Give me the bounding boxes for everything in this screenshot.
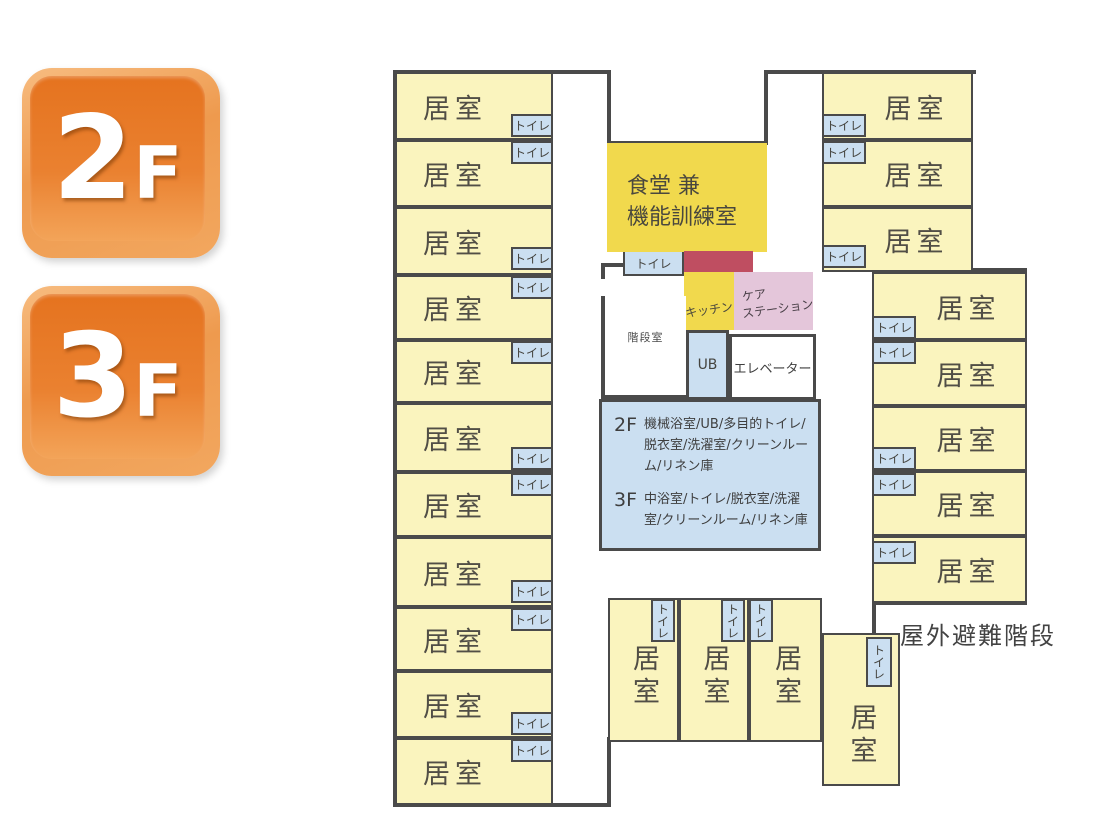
resident-room-label: 居室	[885, 154, 949, 193]
facility-info-box: 2F 機械浴室/UB/多目的トイレ/脱衣室/洗濯室/クリーンルーム/リネン庫 3…	[599, 399, 821, 551]
toilet-label: トイレ	[876, 544, 912, 561]
outdoor-evacuation-stairs-label: 屋外避難階段	[900, 616, 1056, 651]
ub-label: UB	[698, 357, 718, 373]
toilet: トイレ	[511, 247, 553, 270]
toilet: トイレ	[511, 608, 553, 631]
toilet-label: トイレ	[514, 144, 550, 161]
toilet-label: トイレ	[514, 742, 550, 759]
toilet-label: トイレ	[514, 476, 550, 493]
toilet-label: トイレ	[876, 319, 912, 336]
resident-room-label: 居室	[937, 287, 1001, 326]
toilet-label: トイレ	[725, 603, 742, 639]
stairwell-label: 階段室	[628, 329, 664, 345]
resident-room-label: 居室	[423, 288, 487, 327]
toilet-label: トイレ	[826, 248, 862, 265]
badge-face: 3F	[30, 294, 205, 459]
floor-suffix: F	[133, 349, 182, 433]
care-station: ケア ステーション	[734, 272, 813, 330]
toilet: トイレ	[721, 599, 745, 642]
toilet: トイレ	[511, 739, 553, 762]
kitchen: キッチン	[684, 272, 734, 330]
toilet-label: トイレ	[826, 144, 862, 161]
wall-segment	[872, 601, 876, 637]
toilet: トイレ	[511, 473, 553, 496]
info-2f-text: 機械浴室/UB/多目的トイレ/脱衣室/洗濯室/クリーンルーム/リネン庫	[644, 415, 810, 477]
toilet-label: トイレ	[514, 279, 550, 296]
ub-unit-bath: UB	[686, 330, 729, 400]
wall-segment	[607, 737, 611, 807]
toilet: トイレ	[511, 580, 553, 603]
floor-suffix: F	[133, 131, 182, 215]
resident-room-label: 居室	[423, 87, 487, 126]
toilet: トイレ	[511, 712, 553, 735]
resident-room-label: 居室	[423, 620, 487, 659]
dining-room-label-line2: 機能訓練室	[627, 203, 767, 233]
floor-number: 2	[53, 91, 134, 226]
resident-room-label: 居室	[937, 484, 1001, 523]
info-row-2f: 2F 機械浴室/UB/多目的トイレ/脱衣室/洗濯室/クリーンルーム/リネン庫	[614, 415, 810, 477]
toilet: トイレ	[623, 250, 684, 276]
resident-room-label: 居室	[423, 485, 487, 524]
floor-number: 3	[53, 309, 134, 444]
resident-room-label: 居室	[937, 550, 1001, 589]
toilet-label: トイレ	[514, 611, 550, 628]
toilet: トイレ	[872, 541, 916, 564]
resident-room-label: 居室	[624, 644, 663, 710]
toilet-label: トイレ	[655, 603, 672, 639]
resident-room-label: 居室	[423, 154, 487, 193]
toilet-label: トイレ	[876, 344, 912, 361]
resident-room-label: 居室	[695, 644, 734, 710]
toilet-label: トイレ	[753, 603, 770, 639]
floor-plan-canvas: 2F 3F 居室居室居室居室居室居室居室居室居室居室居室居室居室居室居室居室居室…	[0, 0, 1098, 840]
wall-segment	[601, 263, 605, 279]
resident-room-label: 居室	[937, 354, 1001, 393]
resident-room-label: 居室	[423, 685, 487, 724]
toilet: トイレ	[511, 276, 553, 299]
stairwell: 階段室	[601, 296, 686, 399]
resident-room-label: 居室	[423, 418, 487, 457]
toilet: トイレ	[511, 341, 553, 364]
resident-room-label: 居室	[423, 222, 487, 261]
toilet: トイレ	[822, 141, 866, 164]
resident-room-label: 居室	[423, 752, 487, 791]
resident-room-label: 居室	[842, 703, 881, 769]
info-3f-text: 中浴室/トイレ/脱衣室/洗濯室/クリーンルーム/リネン庫	[644, 490, 810, 532]
elevator-label: エレベーター	[733, 358, 811, 377]
toilet-label: トイレ	[876, 450, 912, 467]
toilet: トイレ	[511, 447, 553, 470]
toilet-label: トイレ	[514, 450, 550, 467]
resident-room-label: 居室	[885, 87, 949, 126]
badge-text: 3F	[53, 319, 183, 435]
badge-text: 2F	[53, 101, 183, 217]
toilet: トイレ	[872, 447, 916, 470]
elevator: エレベーター	[729, 334, 816, 400]
toilet: トイレ	[872, 341, 916, 364]
toilet-label: トイレ	[514, 583, 550, 600]
resident-room-label: 居室	[423, 352, 487, 391]
info-3f-label: 3F	[614, 490, 637, 532]
resident-room-label: 居室	[766, 644, 805, 710]
toilet: トイレ	[511, 141, 553, 164]
wall-segment	[607, 70, 611, 145]
toilet: トイレ	[872, 316, 916, 339]
toilet-label: トイレ	[514, 344, 550, 361]
red-zone	[684, 251, 753, 272]
floor-badge-2f: 2F	[22, 68, 220, 258]
toilet: トイレ	[872, 473, 916, 496]
info-row-3f: 3F 中浴室/トイレ/脱衣室/洗濯室/クリーンルーム/リネン庫	[614, 490, 810, 532]
toilet-label: トイレ	[514, 250, 550, 267]
kitchen-label: キッチン	[684, 298, 734, 322]
dining-function-training-room: 食堂 兼 機能訓練室	[607, 143, 767, 252]
resident-room-label: 居室	[937, 419, 1001, 458]
toilet: トイレ	[511, 114, 553, 137]
toilet-label: トイレ	[871, 644, 888, 680]
toilet-label: トイレ	[876, 476, 912, 493]
toilet: トイレ	[822, 245, 866, 268]
floor-badge-3f: 3F	[22, 286, 220, 476]
toilet: トイレ	[651, 599, 675, 642]
resident-room-label: 居室	[423, 553, 487, 592]
toilet: トイレ	[866, 637, 892, 687]
toilet-label: トイレ	[514, 715, 550, 732]
info-2f-label: 2F	[614, 415, 637, 477]
toilet-label: トイレ	[826, 117, 862, 134]
wall-segment	[764, 70, 768, 145]
toilet: トイレ	[749, 599, 773, 642]
resident-room-label: 居室	[885, 220, 949, 259]
dining-room-label-line1: 食堂 兼	[627, 172, 767, 202]
badge-face: 2F	[30, 76, 205, 241]
toilet-label: トイレ	[514, 117, 550, 134]
toilet: トイレ	[822, 114, 866, 137]
toilet-label: トイレ	[635, 255, 671, 272]
